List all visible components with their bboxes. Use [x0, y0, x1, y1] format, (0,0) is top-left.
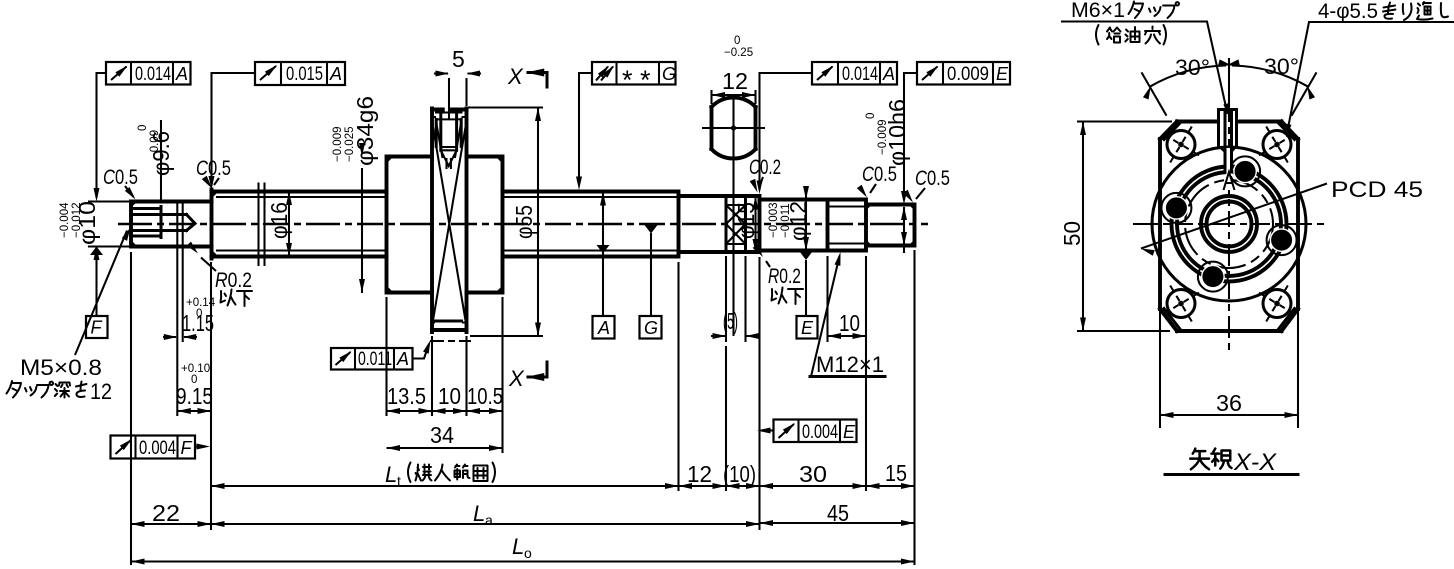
- svg-text:50: 50: [1059, 221, 1085, 246]
- svg-text:M12×1: M12×1: [816, 352, 884, 377]
- svg-text:t: t: [397, 473, 401, 489]
- svg-text:5: 5: [452, 46, 465, 72]
- svg-text:0.014: 0.014: [135, 64, 171, 85]
- svg-text:a: a: [485, 512, 493, 528]
- svg-text:M6×1: M6×1: [1071, 0, 1125, 22]
- svg-text:−0.009: −0.009: [332, 127, 344, 163]
- svg-text:30°: 30°: [1175, 55, 1210, 80]
- svg-text:13.5: 13.5: [387, 383, 426, 409]
- svg-text:4-φ5.5: 4-φ5.5: [1318, 0, 1378, 23]
- svg-text:36: 36: [1216, 390, 1242, 416]
- svg-text:A: A: [597, 318, 610, 338]
- svg-text:−0.009: −0.009: [877, 120, 889, 156]
- svg-text:L: L: [385, 462, 397, 487]
- svg-text:A: A: [175, 64, 188, 84]
- svg-text:0: 0: [196, 308, 202, 320]
- svg-text:G: G: [644, 318, 658, 338]
- svg-text:10.5: 10.5: [467, 383, 503, 409]
- svg-text:0.004: 0.004: [139, 438, 176, 459]
- svg-text:−0.011: −0.011: [780, 203, 792, 238]
- svg-text:φ15: φ15: [733, 202, 759, 239]
- svg-text:0.014: 0.014: [842, 64, 878, 85]
- svg-text:φ16: φ16: [266, 202, 292, 239]
- svg-text:22: 22: [152, 500, 180, 526]
- svg-text:R0.2: R0.2: [215, 269, 252, 292]
- svg-text:o: o: [524, 545, 532, 561]
- svg-text:15: 15: [885, 460, 907, 486]
- svg-text:0.009: 0.009: [947, 64, 989, 85]
- svg-text:(10): (10): [723, 461, 756, 487]
- svg-text:30: 30: [799, 461, 827, 487]
- svg-text:−0.003: −0.003: [768, 203, 780, 239]
- svg-text:10: 10: [839, 310, 860, 336]
- svg-text:φ55: φ55: [511, 205, 537, 239]
- svg-text:(5): (5): [723, 308, 738, 334]
- svg-text:0: 0: [191, 374, 197, 386]
- svg-text:−0.25: −0.25: [724, 47, 753, 59]
- svg-text:−0.025: −0.025: [344, 127, 356, 163]
- svg-text:9.15: 9.15: [176, 383, 213, 409]
- svg-text:E: E: [801, 318, 814, 338]
- svg-text:0.015: 0.015: [286, 64, 323, 85]
- svg-text:34: 34: [430, 422, 454, 448]
- svg-text:R0.2: R0.2: [768, 265, 801, 288]
- svg-text:A: A: [396, 349, 409, 369]
- svg-text:G: G: [662, 64, 676, 84]
- svg-text:C0.5: C0.5: [103, 166, 138, 189]
- svg-text:C0.2: C0.2: [749, 156, 781, 179]
- svg-text:E: E: [996, 64, 1009, 84]
- svg-text:12: 12: [687, 461, 712, 487]
- svg-text:M5×0.8: M5×0.8: [20, 355, 102, 380]
- svg-text:F: F: [91, 318, 103, 338]
- svg-text:X: X: [507, 64, 524, 89]
- svg-text:A: A: [329, 64, 342, 84]
- svg-text:−0.012: −0.012: [71, 203, 83, 239]
- svg-text:E: E: [843, 422, 856, 442]
- svg-text:A: A: [882, 64, 895, 84]
- svg-text:30°: 30°: [1264, 54, 1299, 79]
- svg-text:0.004: 0.004: [802, 422, 838, 443]
- svg-text:C0.5: C0.5: [915, 167, 950, 190]
- svg-text:−0.004: −0.004: [59, 202, 71, 238]
- svg-text:10: 10: [438, 383, 461, 409]
- svg-text:45: 45: [827, 500, 849, 526]
- svg-text:12: 12: [90, 379, 112, 404]
- svg-text:C0.5: C0.5: [862, 163, 897, 186]
- svg-text:X: X: [508, 366, 525, 391]
- svg-text:L: L: [512, 534, 524, 559]
- svg-text:* *: * *: [622, 65, 651, 95]
- svg-text:PCD 45: PCD 45: [1331, 177, 1423, 202]
- svg-text:L: L: [473, 501, 485, 526]
- svg-text:0: 0: [734, 35, 740, 47]
- svg-text:0: 0: [137, 125, 149, 131]
- svg-text:12: 12: [722, 68, 748, 94]
- svg-text:F: F: [181, 438, 193, 458]
- svg-text:0: 0: [865, 113, 877, 119]
- svg-text:−0.09: −0.09: [149, 130, 161, 159]
- svg-text:X-X: X-X: [1233, 449, 1277, 476]
